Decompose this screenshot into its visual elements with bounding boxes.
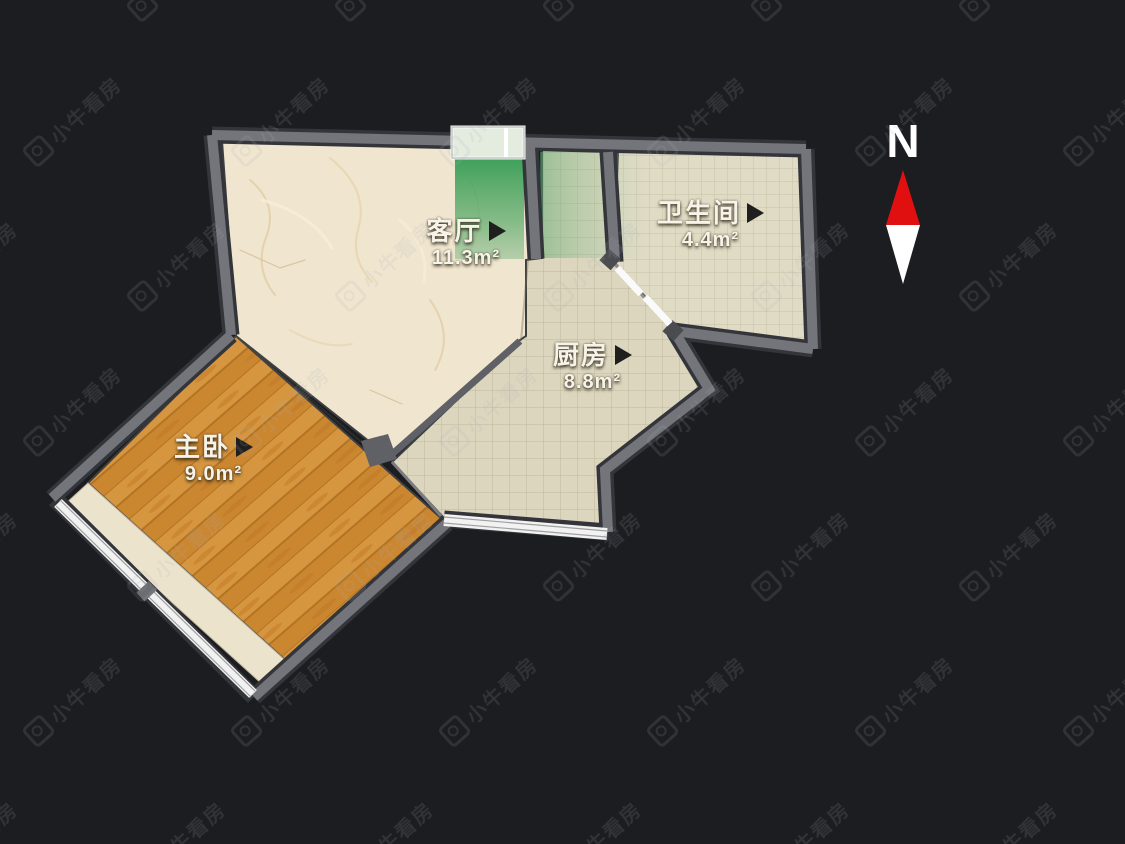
room-marker-arrow-icon [615, 345, 632, 365]
room-label-living[interactable]: 客厅 11.3m² [399, 218, 533, 268]
labels-layer: 客厅 11.3m² 卫生间 4.4m² 厨房 8.8m² 主卧 9. [0, 0, 1125, 844]
room-label-kitchen[interactable]: 厨房 8.8m² [525, 342, 660, 392]
room-area: 8.8m² [564, 372, 621, 392]
room-marker-arrow-icon [236, 437, 253, 457]
room-area: 9.0m² [185, 464, 242, 484]
room-marker-arrow-icon [747, 203, 764, 223]
room-marker-arrow-icon [489, 221, 506, 241]
room-name: 主卧 [174, 434, 230, 460]
floorplan-canvas: 客厅 11.3m² 卫生间 4.4m² 厨房 8.8m² 主卧 9. [0, 0, 1125, 844]
room-name: 客厅 [426, 218, 482, 244]
room-name: 卫生间 [657, 200, 741, 226]
room-name: 厨房 [553, 342, 609, 368]
room-area: 4.4m² [682, 230, 739, 250]
room-label-bathroom[interactable]: 卫生间 4.4m² [638, 200, 783, 250]
room-area: 11.3m² [432, 248, 500, 268]
room-label-bedroom[interactable]: 主卧 9.0m² [146, 434, 281, 484]
